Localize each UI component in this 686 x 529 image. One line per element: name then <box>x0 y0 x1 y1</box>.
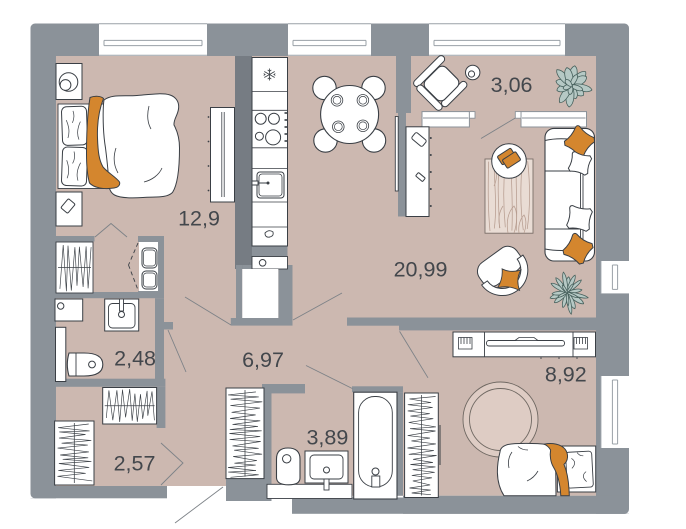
svg-text:20,99: 20,99 <box>394 258 448 282</box>
svg-text:8,92: 8,92 <box>545 362 587 386</box>
svg-text:2,57: 2,57 <box>114 451 156 475</box>
svg-text:3,89: 3,89 <box>306 425 348 449</box>
svg-text:2,48: 2,48 <box>114 346 156 370</box>
svg-text:6,97: 6,97 <box>242 348 284 372</box>
svg-text:3,06: 3,06 <box>491 73 533 97</box>
svg-text:12,9: 12,9 <box>178 207 220 231</box>
